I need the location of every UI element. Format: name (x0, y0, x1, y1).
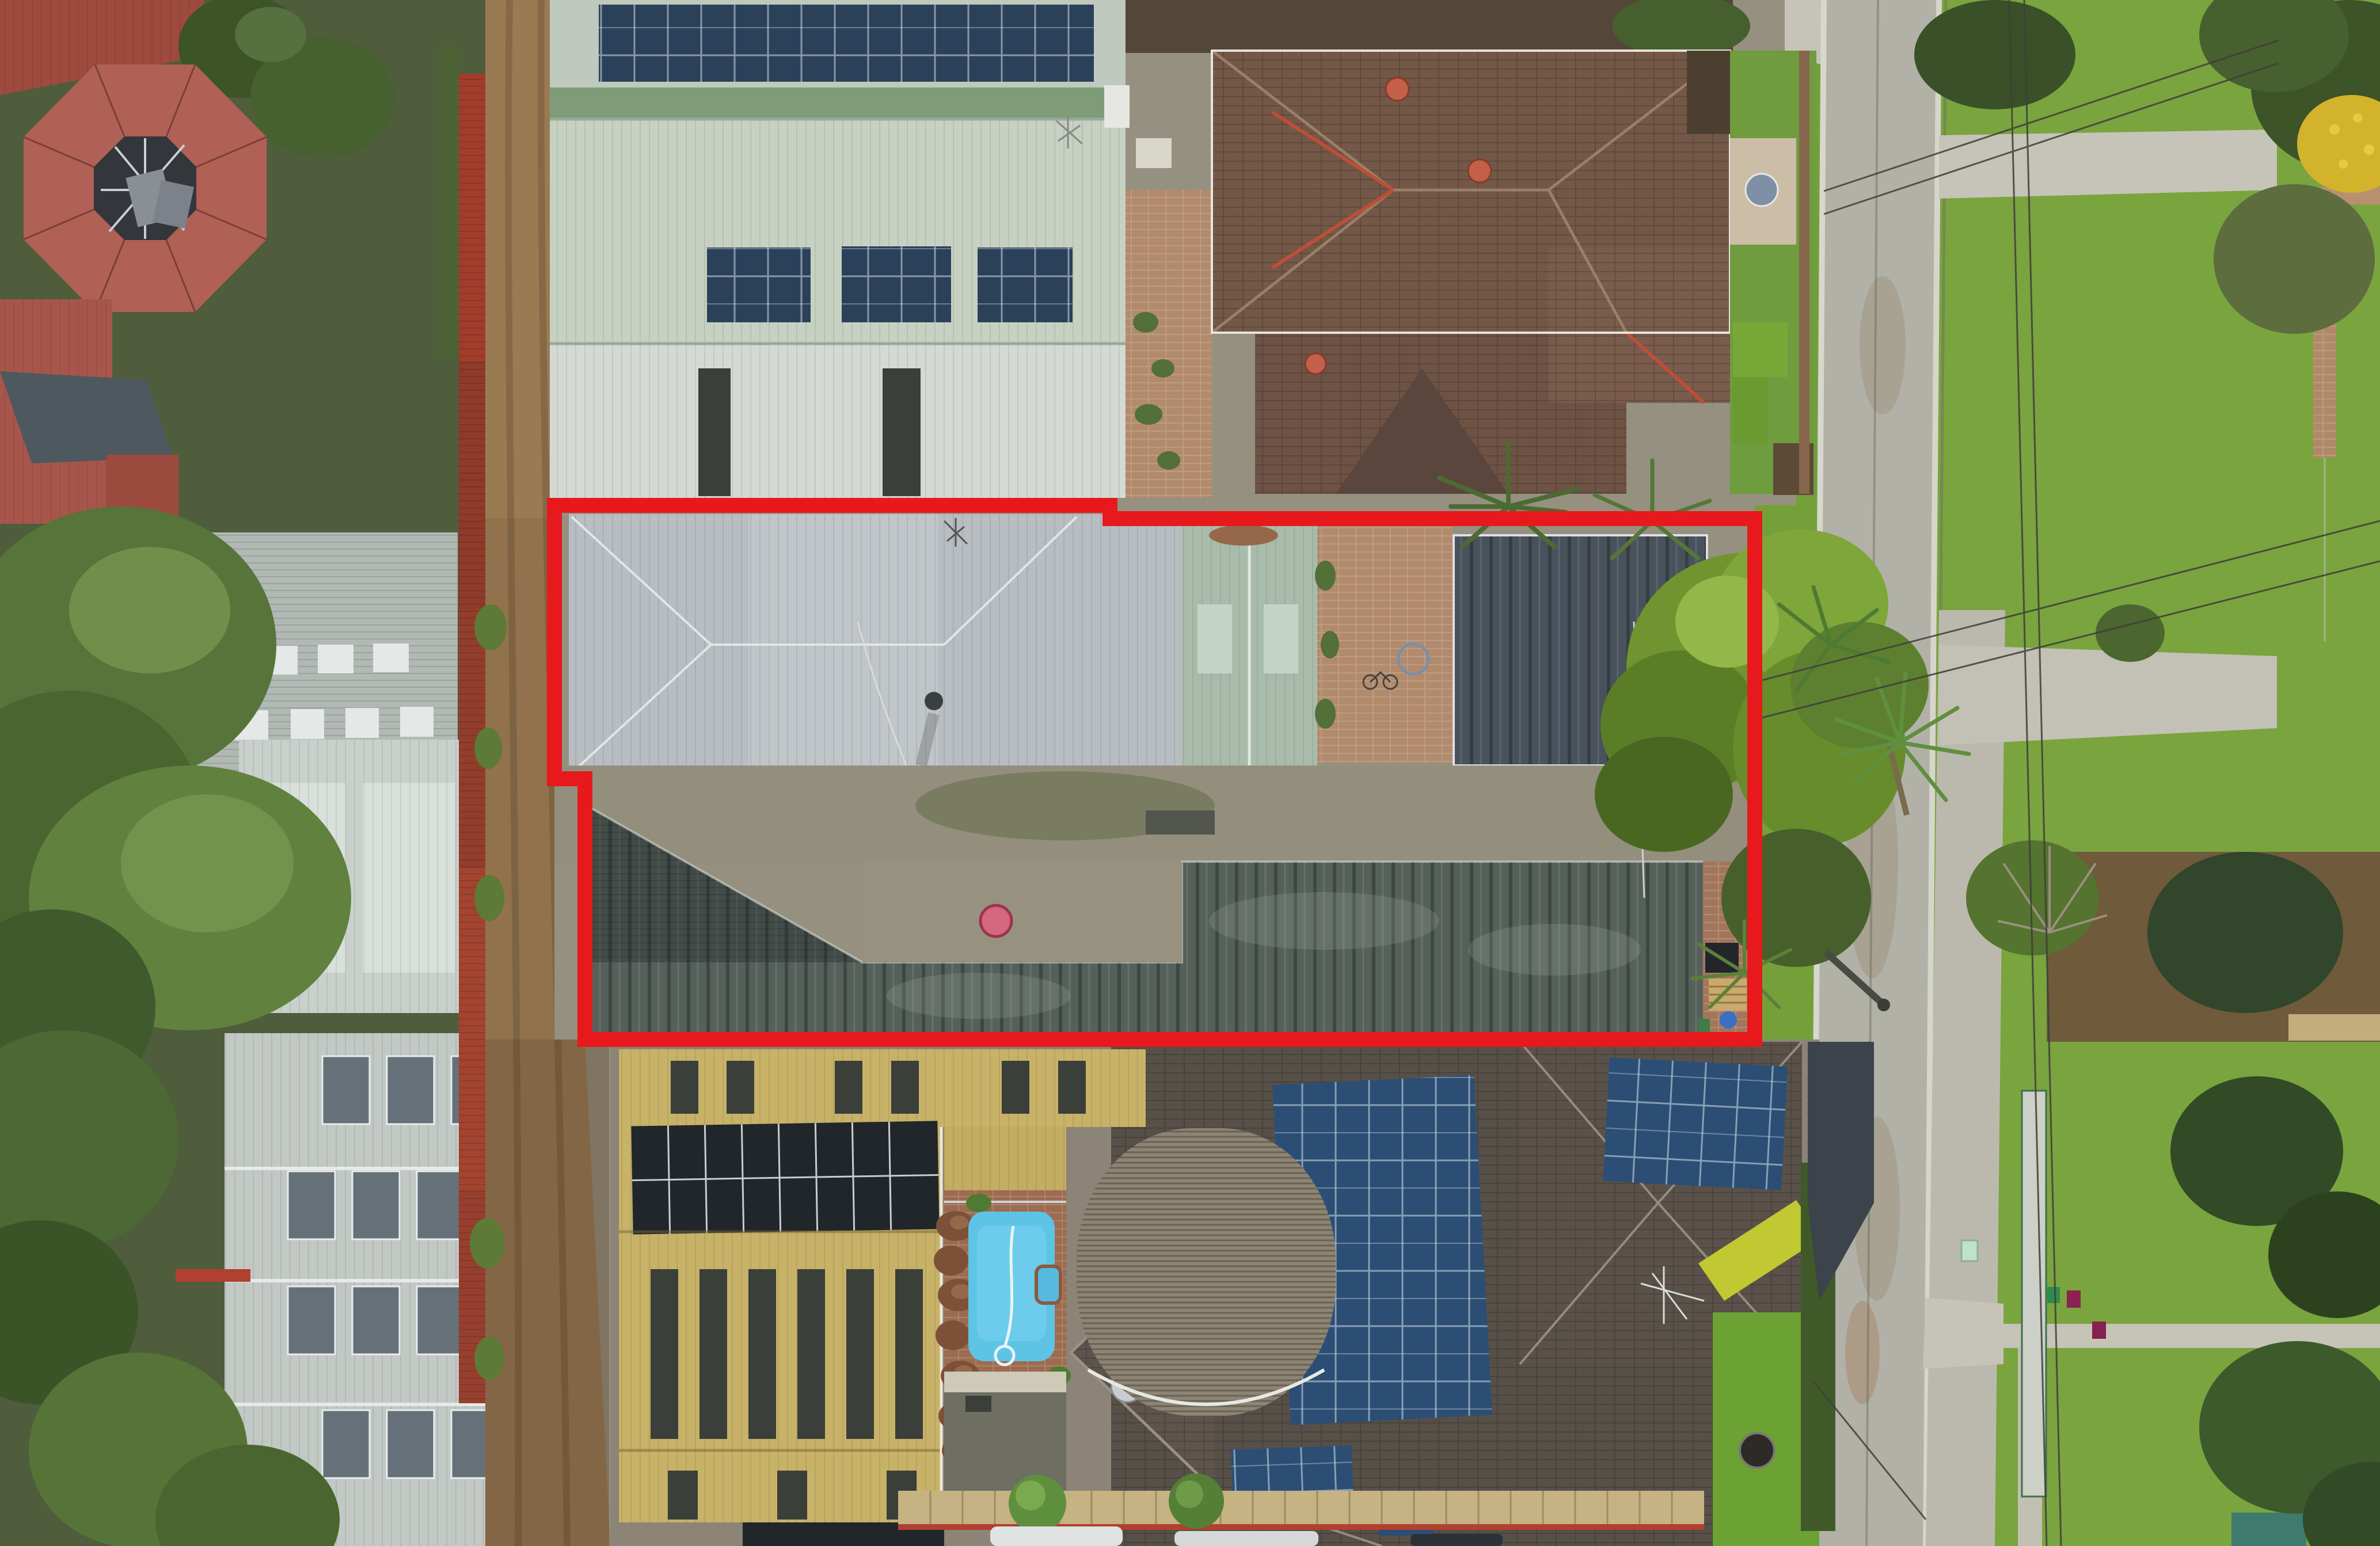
tree (2147, 852, 2343, 1013)
car-white (1174, 1531, 1318, 1546)
utility-box (1961, 1240, 1978, 1261)
spa (1036, 1266, 1060, 1303)
bin-maroon (2092, 1322, 2106, 1339)
hedge-block (1733, 322, 1788, 377)
topiary-highlight (1176, 1480, 1203, 1508)
solar-hot-water-array (631, 1121, 939, 1234)
awning-texture (944, 1127, 1066, 1190)
ac-unit (1104, 85, 1130, 128)
red-ridge-cap (176, 1269, 250, 1282)
tree-highlight (235, 7, 306, 62)
bottom-block (610, 1039, 1874, 1546)
tree-highlight (121, 794, 294, 932)
car-dark (1410, 1534, 1503, 1546)
roof-vent-strip (883, 368, 921, 496)
hedge-strip (436, 46, 461, 357)
tree-over-road (1914, 0, 2075, 109)
olive-tree (2214, 184, 2375, 334)
vent-pipe (925, 692, 943, 710)
pool-path (944, 1372, 1066, 1392)
shed-ridge (550, 87, 1126, 119)
fire-pit (1740, 1433, 1774, 1468)
skylight (1197, 604, 1232, 673)
skylight (1264, 604, 1298, 673)
lamp-head (1877, 999, 1890, 1011)
teal-roof-structure (2231, 1513, 2306, 1546)
aerial-photo (0, 0, 2380, 1546)
umbrella (1746, 174, 1778, 206)
octagon-roof-building (24, 64, 267, 312)
louvre-panel (1136, 138, 1172, 168)
blue-barrel (1720, 1011, 1737, 1029)
solar-array-top-grid (599, 5, 1094, 82)
swimming-pool-area (934, 1127, 1071, 1521)
solar-array-mid (707, 246, 1073, 322)
shed-lower-texture (550, 344, 1126, 498)
solar-array-topright (1603, 1057, 1788, 1190)
driveway-crossing-top (1939, 130, 2277, 199)
green-bin (1698, 1019, 1710, 1034)
tree-highlight (69, 547, 230, 673)
slatted-roof-strip (2022, 1091, 2046, 1497)
hedge-block (1733, 377, 1767, 443)
inner-courtyard (1315, 521, 1453, 763)
rust-patch (1209, 525, 1278, 546)
laneway-shade-dark (485, 1039, 609, 1546)
round-tank (1077, 1128, 1336, 1416)
pergola-right (2288, 1014, 2380, 1041)
driveway-crossing-bottom (1923, 1298, 2003, 1369)
timber-fence (1799, 51, 1809, 494)
dark-patch (1146, 810, 1215, 835)
car-white (990, 1526, 1123, 1546)
court-pocket (862, 862, 1182, 962)
shrub (2096, 604, 2165, 662)
tank-slats (1077, 1128, 1336, 1416)
roof-vent-strip (698, 368, 731, 496)
garden-bed (1687, 51, 1730, 134)
industrial-shed (550, 0, 1126, 498)
highlighted-property (554, 505, 1755, 1039)
pink-disc (980, 905, 1012, 936)
bin-green (2047, 1287, 2060, 1303)
grille (965, 1396, 991, 1412)
driveway-court (554, 766, 1755, 865)
topiary-highlight (1016, 1480, 1045, 1510)
right-wing-texture (1549, 247, 1730, 403)
bin-maroon (2067, 1290, 2081, 1308)
